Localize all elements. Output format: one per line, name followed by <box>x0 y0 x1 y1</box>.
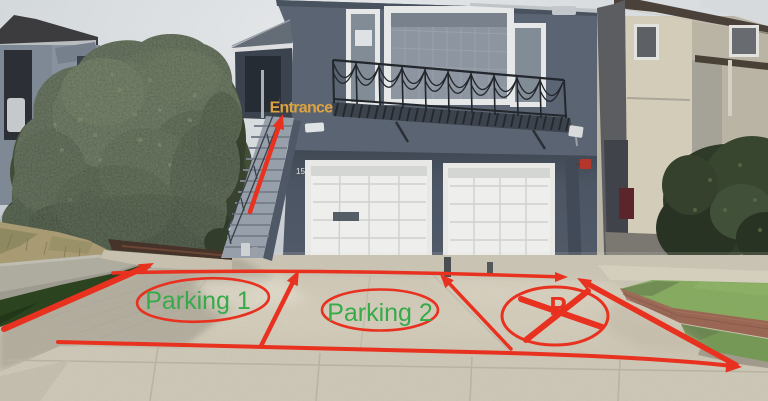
svg-text:Entrance: Entrance <box>270 100 334 117</box>
svg-text:P: P <box>549 291 566 321</box>
svg-text:Parking 1: Parking 1 <box>145 287 251 315</box>
svg-text:Parking 2: Parking 2 <box>327 299 433 327</box>
svg-text:157: 157 <box>296 167 310 176</box>
